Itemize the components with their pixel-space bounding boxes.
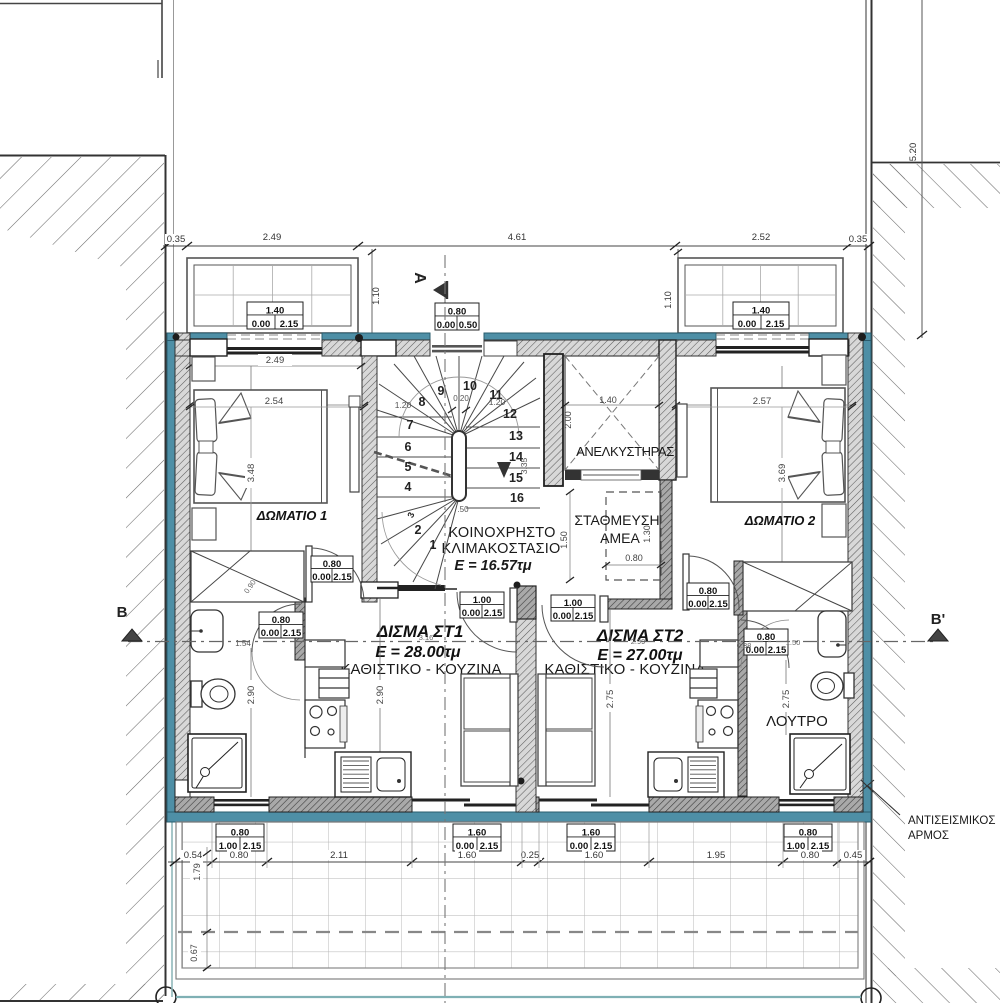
svg-text:0.45: 0.45 [844,850,863,861]
svg-text:0.50: 0.50 [459,320,478,331]
svg-text:1.50: 1.50 [559,531,569,549]
svg-text:0.67: 0.67 [189,944,199,962]
svg-text:A: A [411,272,428,284]
svg-text:1.60: 1.60 [585,850,604,861]
svg-text:2.15: 2.15 [484,608,503,619]
svg-text:9: 9 [438,384,445,398]
svg-text:1.60: 1.60 [458,850,477,861]
svg-text:E = 28.00τμ: E = 28.00τμ [375,644,460,661]
svg-text:1.60: 1.60 [582,827,601,838]
svg-text:ΑΡΜΟΣ: ΑΡΜΟΣ [908,830,949,842]
svg-text:3.69: 3.69 [777,464,788,483]
svg-text:0.00: 0.00 [553,611,572,622]
svg-text:2: 2 [415,523,422,537]
svg-text:5: 5 [405,460,412,474]
svg-text:1.00: 1.00 [473,595,492,606]
svg-text:3.16: 3.16 [419,633,434,642]
svg-text:ΚΛΙΜΑΚΟΣΤΑΣΙΟ: ΚΛΙΜΑΚΟΣΤΑΣΙΟ [442,541,561,557]
svg-text:0.25: 0.25 [521,850,540,861]
svg-text:0.35: 0.35 [849,234,868,245]
svg-text:ΚΟΙΝΟΧΡΗΣΤΟ: ΚΟΙΝΟΧΡΗΣΤΟ [448,525,555,541]
svg-text:0.54: 0.54 [184,850,203,861]
svg-text:1.60: 1.60 [468,827,487,838]
svg-text:0.80: 0.80 [448,306,467,317]
svg-text:0.00: 0.00 [688,599,707,610]
svg-text:1.10: 1.10 [663,291,673,309]
svg-text:0.80: 0.80 [699,586,718,597]
svg-text:1.95: 1.95 [707,850,726,861]
svg-text:2.15: 2.15 [575,611,594,622]
svg-text:0.80: 0.80 [231,827,250,838]
svg-text:ΔΩΜΑΤΙΟ 1: ΔΩΜΑΤΙΟ 1 [256,508,327,523]
svg-text:8: 8 [419,395,426,409]
svg-text:2.57: 2.57 [753,396,772,407]
svg-text:0.00: 0.00 [312,572,331,583]
svg-text:1: 1 [430,538,437,552]
svg-text:ΑΝΤΙΣΕΙΣΜΙΚΟΣ: ΑΝΤΙΣΕΙΣΜΙΚΟΣ [908,815,995,827]
svg-text:2.15: 2.15 [283,628,302,639]
svg-text:ΑΜΕΑ: ΑΜΕΑ [600,530,640,546]
svg-text:0.38: 0.38 [737,641,752,650]
svg-text:10: 10 [463,379,477,393]
svg-text:2.52: 2.52 [752,232,771,243]
svg-text:7: 7 [407,418,414,432]
svg-text:2.00: 2.00 [563,411,573,429]
svg-text:2.15: 2.15 [280,319,299,330]
svg-text:2.15: 2.15 [768,645,787,656]
svg-text:2.49: 2.49 [263,232,282,243]
svg-text:2.75: 2.75 [605,690,616,709]
svg-text:ΛΟΥΤΡΟ: ΛΟΥΤΡΟ [766,713,828,730]
svg-text:0.80: 0.80 [272,615,291,626]
svg-text:1.54: 1.54 [235,639,251,648]
svg-text:2.54: 2.54 [265,396,284,407]
svg-text:.50: .50 [457,505,469,514]
svg-text:B: B [117,604,128,621]
svg-text:ΑΝΕΛΚΥΣΤΗΡΑΣ: ΑΝΕΛΚΥΣΤΗΡΑΣ [576,444,674,459]
svg-text:13: 13 [509,429,523,443]
svg-text:1.40: 1.40 [266,305,285,316]
svg-text:2.15: 2.15 [480,841,499,852]
svg-text:0.80: 0.80 [625,553,643,563]
svg-text:1.40: 1.40 [752,305,771,316]
svg-text:0.20: 0.20 [453,394,469,403]
svg-text:1.50: 1.50 [786,638,801,647]
svg-text:2.15: 2.15 [766,319,785,330]
svg-text:2.90: 2.90 [246,686,257,705]
svg-text:1.00: 1.00 [564,598,583,609]
svg-text:0.00: 0.00 [738,319,757,330]
svg-text:3.48: 3.48 [246,464,257,483]
svg-text:E = 16.57τμ: E = 16.57τμ [454,558,531,574]
svg-text:1.40: 1.40 [599,395,617,405]
svg-text:0.00: 0.00 [252,319,271,330]
svg-text:2.49: 2.49 [266,355,285,366]
svg-text:0.00: 0.00 [462,608,481,619]
svg-text:12: 12 [503,407,517,421]
svg-text:2.11: 2.11 [330,850,348,861]
svg-text:1.10: 1.10 [371,287,381,305]
svg-text:0.80: 0.80 [799,827,818,838]
svg-text:2.90: 2.90 [375,686,386,705]
svg-text:0.35: 0.35 [167,234,186,245]
svg-text:5.20: 5.20 [908,143,919,162]
svg-text:ΔΩΜΑΤΙΟ 2: ΔΩΜΑΤΙΟ 2 [744,513,816,528]
svg-text:2.15: 2.15 [709,599,728,610]
svg-text:1.20: 1.20 [489,397,506,407]
svg-text:1.20: 1.20 [395,400,412,410]
svg-text:B': B' [931,611,945,628]
svg-text:0.00: 0.00 [437,320,456,331]
svg-text:0.80: 0.80 [230,850,249,861]
svg-text:2.15: 2.15 [333,572,352,583]
svg-text:6: 6 [405,440,412,454]
svg-text:3.35: 3.35 [519,457,529,474]
svg-text:1.79: 1.79 [192,863,202,881]
svg-text:1.30: 1.30 [642,525,652,543]
svg-text:0.80: 0.80 [801,850,820,861]
svg-text:0.00: 0.00 [261,628,280,639]
svg-text:4.61: 4.61 [508,232,527,243]
svg-text:0.80: 0.80 [323,559,342,570]
svg-text:4: 4 [405,480,412,494]
svg-text:16: 16 [510,491,524,505]
svg-text:2.75: 2.75 [781,690,792,709]
